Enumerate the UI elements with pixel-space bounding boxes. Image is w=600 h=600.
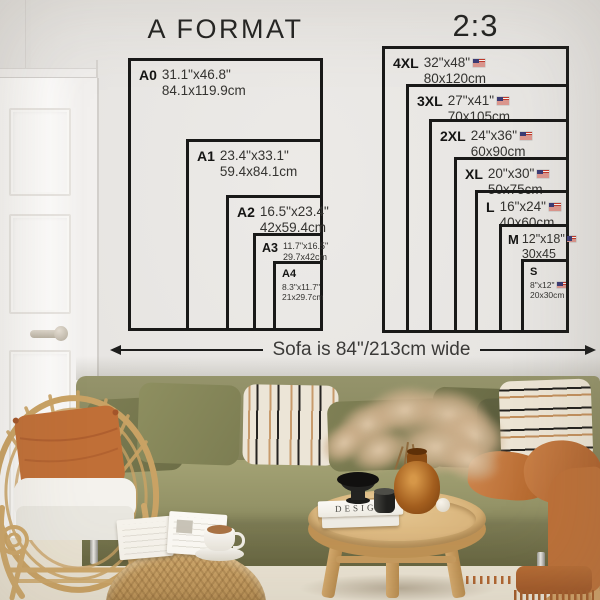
chart-title-a-format: A FORMAT bbox=[128, 14, 323, 45]
us-flag-icon bbox=[549, 203, 561, 211]
open-book-left-page bbox=[116, 516, 173, 561]
book-photo bbox=[176, 520, 193, 534]
size-inches: 8"x12" bbox=[530, 280, 554, 290]
size-inches: 16.5"x23.4" bbox=[260, 204, 329, 220]
size-label: A2 bbox=[237, 204, 255, 236]
wall-trim-molding bbox=[0, 68, 98, 78]
size-label: A0 bbox=[139, 67, 157, 99]
size-inches: 23.4"x33.1" bbox=[220, 148, 289, 164]
size-cm: 59.4x84.1cm bbox=[220, 164, 297, 180]
us-flag-icon bbox=[557, 282, 566, 288]
throw-fringe bbox=[514, 590, 594, 600]
us-flag-icon bbox=[520, 132, 532, 140]
black-candle-top bbox=[374, 488, 395, 495]
door-handle-rose bbox=[54, 326, 68, 341]
size-inches: 11.7"x16.5" bbox=[283, 241, 328, 252]
size-label: A4 bbox=[282, 268, 318, 281]
book-text-lines bbox=[122, 521, 168, 555]
decor-ball bbox=[436, 498, 450, 512]
chart-title-2-3: 2:3 bbox=[382, 8, 569, 44]
amber-vase-mouth bbox=[407, 448, 427, 455]
size-cm: 20x30cm bbox=[530, 290, 564, 300]
size-label: S bbox=[530, 266, 564, 279]
size-label: A1 bbox=[197, 148, 215, 180]
size-cm: 84.1x119.9cm bbox=[162, 83, 246, 99]
size-inches: 31.1"x46.8" bbox=[162, 67, 231, 83]
size-cm: 21x29.7cm bbox=[282, 292, 318, 302]
size-label: M bbox=[508, 232, 519, 262]
size-label: L bbox=[486, 199, 495, 231]
us-flag-icon bbox=[567, 236, 576, 242]
size-box-a4: A4 8.3"x11.7" 21x29.7cm bbox=[273, 261, 323, 331]
size-label: 2XL bbox=[440, 128, 466, 160]
amber-glass-vase bbox=[394, 461, 440, 514]
size-inches: 27"x41" bbox=[448, 93, 494, 109]
poster-size-guide-lifestyle-image: DESIGN A FORMAT A0 31.1"x46.8" 84.1x119.… bbox=[0, 0, 600, 600]
black-bowl-rim bbox=[337, 472, 379, 487]
door-panel bbox=[9, 108, 71, 196]
size-inches: 24"x36" bbox=[471, 128, 517, 144]
wall-trim-vertical bbox=[25, 0, 31, 69]
size-box-s: S 8"x12" 20x30cm bbox=[521, 259, 569, 333]
arrow-line bbox=[121, 349, 263, 351]
sofa-width-label: Sofa is 84"/213cm wide bbox=[263, 339, 481, 361]
arrow-right-head-icon bbox=[585, 345, 596, 355]
chart-a-format: A0 31.1"x46.8" 84.1x119.9cm A1 23.4"x33.… bbox=[128, 58, 323, 331]
size-inches: 32"x48" bbox=[424, 55, 470, 71]
us-flag-icon bbox=[497, 97, 509, 105]
us-flag-icon bbox=[473, 59, 485, 67]
us-flag-icon bbox=[537, 170, 549, 178]
size-label: 4XL bbox=[393, 55, 419, 87]
door-panel bbox=[9, 214, 71, 314]
size-inches: 16"x24" bbox=[500, 199, 546, 215]
size-inches: 8.3"x11.7" bbox=[282, 282, 320, 292]
sofa-width-arrow: Sofa is 84"/213cm wide bbox=[110, 340, 596, 360]
size-label: A3 bbox=[262, 241, 278, 262]
arrow-line bbox=[480, 349, 585, 351]
chart-2-3: 4XL 32"x48" 80x120cm 3XL 27"x41" 70x105c… bbox=[382, 46, 569, 333]
coffee-surface bbox=[207, 525, 232, 534]
size-inches: 20"x30" bbox=[488, 166, 534, 182]
arrow-left-head-icon bbox=[110, 345, 121, 355]
size-inches: 12"x18" bbox=[522, 232, 565, 247]
